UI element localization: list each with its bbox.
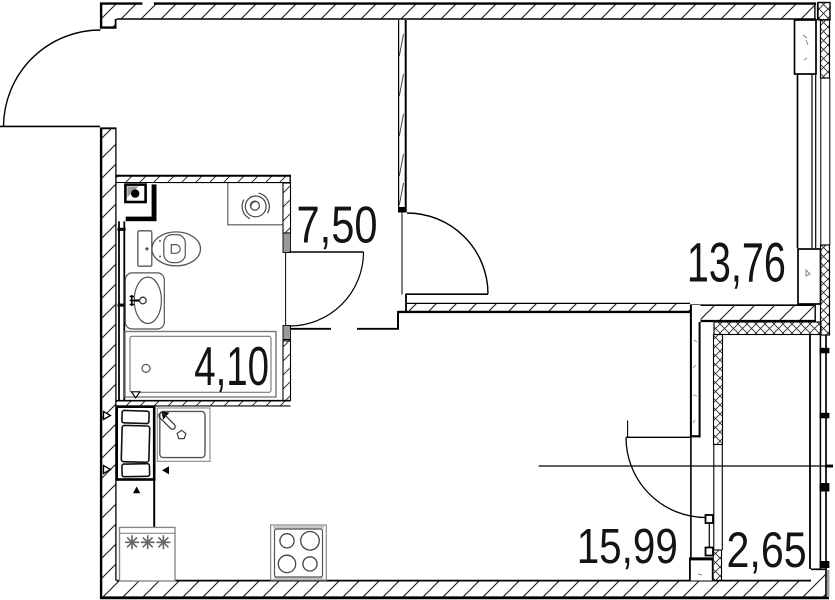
svg-text:7,50: 7,50 (297, 196, 378, 253)
svg-text:13,76: 13,76 (687, 232, 786, 294)
svg-text:15,99: 15,99 (577, 518, 678, 574)
svg-text:4,10: 4,10 (194, 335, 269, 396)
svg-text:2,65: 2,65 (727, 522, 807, 578)
